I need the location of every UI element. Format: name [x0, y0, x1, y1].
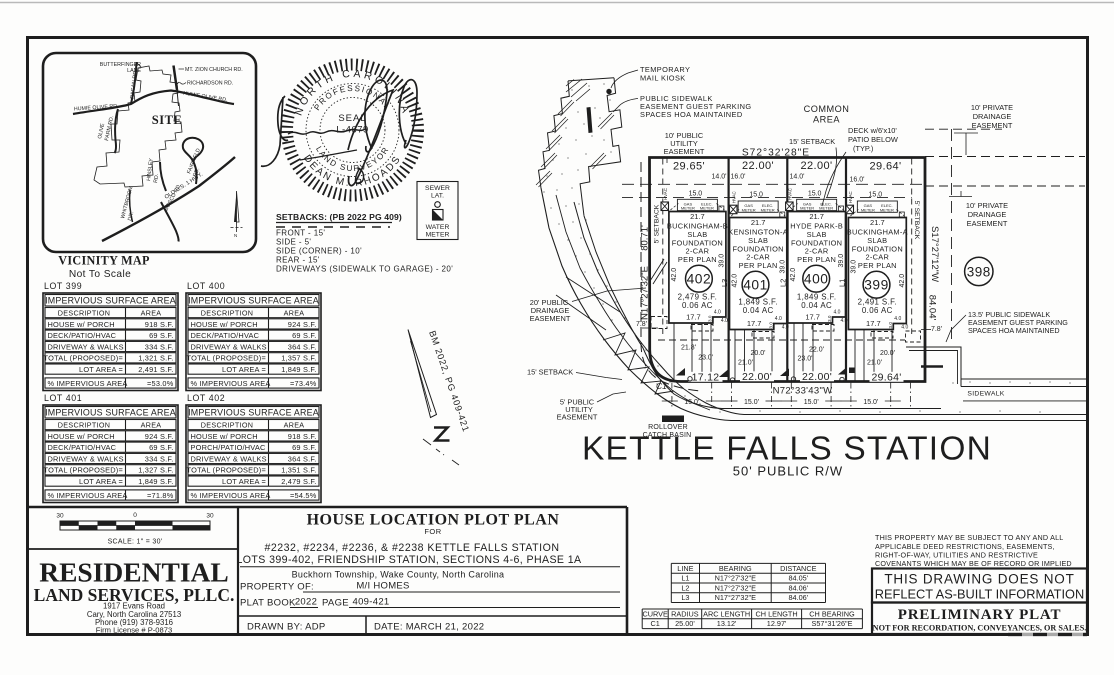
svg-text:THIS DRAWING DOES NOT: THIS DRAWING DOES NOT [884, 572, 1074, 587]
svg-text:16.0': 16.0' [731, 174, 746, 181]
svg-text:METER: METER [761, 207, 775, 212]
svg-text:DESCRIPTION: DESCRIPTION [201, 420, 253, 429]
svg-text:=73.4%: =73.4% [290, 379, 317, 388]
svg-text:L3: L3 [681, 593, 689, 602]
svg-text:N72°33'43"W: N72°33'43"W [773, 385, 833, 396]
svg-text:17.12: 17.12 [692, 371, 720, 383]
svg-text:924 S.F.: 924 S.F. [145, 432, 174, 441]
svg-text:4.0: 4.0 [834, 310, 841, 316]
svg-text:AREA: AREA [284, 308, 305, 317]
svg-text:METER: METER [700, 206, 714, 211]
svg-text:13.12': 13.12' [717, 619, 737, 628]
svg-text:3.0: 3.0 [827, 315, 832, 322]
svg-text:PER PLAN: PER PLAN [739, 261, 778, 270]
svg-text:0.06 AC: 0.06 AC [682, 301, 713, 310]
svg-text:4.0: 4.0 [714, 310, 721, 316]
svg-text:PAGE: PAGE [322, 598, 349, 609]
svg-text:22.0': 22.0' [809, 347, 824, 354]
svg-text:29.64': 29.64' [869, 161, 901, 173]
svg-text:REFLECT AS-BUILT INFORMATION: REFLECT AS-BUILT INFORMATION [875, 587, 1085, 602]
svg-text:4.0: 4.0 [841, 318, 848, 324]
svg-text:DRIVEWAY & WALKS: DRIVEWAY & WALKS [48, 342, 124, 351]
svg-text:C1: C1 [656, 381, 667, 391]
svg-text:DRIVEWAY & WALKS: DRIVEWAY & WALKS [48, 454, 124, 463]
svg-text:FRONT - 15': FRONT - 15' [276, 229, 325, 238]
svg-text:METER: METER [800, 206, 814, 211]
svg-text:HOUSE LOCATION PLOT PLAN: HOUSE LOCATION PLOT PLAN [307, 512, 560, 529]
svg-text:DRAINAGE: DRAINAGE [973, 112, 1012, 121]
svg-text:N17°27'32"E: N17°27'32"E [715, 574, 757, 583]
svg-text:DESCRIPTION: DESCRIPTION [58, 308, 110, 317]
svg-text:M/I HOMES: M/I HOMES [356, 581, 409, 592]
svg-text:DECK w/6'x10': DECK w/6'x10' [848, 126, 897, 135]
svg-text:924 S.F.: 924 S.F. [288, 320, 317, 329]
svg-text:TOTAL (PROPOSED)=: TOTAL (PROPOSED)= [187, 354, 266, 363]
svg-text:42.0: 42.0 [732, 274, 739, 288]
svg-text:REAR - 15': REAR - 15' [276, 256, 320, 265]
svg-text:0.06 AC: 0.06 AC [862, 306, 893, 315]
svg-text:MAIL KIOSK: MAIL KIOSK [640, 74, 686, 83]
svg-text:17.7: 17.7 [747, 319, 762, 328]
svg-text:4.0: 4.0 [782, 325, 789, 331]
svg-text:15.0: 15.0 [808, 191, 822, 198]
svg-text:39.0: 39.0 [850, 260, 857, 274]
svg-text:22.00': 22.00' [742, 160, 774, 172]
svg-text:COVENANTS WHICH MAY BE OF RECO: COVENANTS WHICH MAY BE OF RECORD OR IMPL… [875, 559, 1072, 568]
svg-text:PRELIMINARY PLAT: PRELIMINARY PLAT [898, 607, 1062, 623]
svg-text:918 S.F.: 918 S.F. [145, 320, 174, 329]
svg-text:918 S.F.: 918 S.F. [288, 432, 317, 441]
svg-text:1,849 S.F.: 1,849 S.F. [138, 477, 173, 486]
svg-text:RICHARDSON RD.: RICHARDSON RD. [187, 81, 233, 87]
svg-text:84.06': 84.06' [788, 593, 808, 602]
svg-text:EASEMENT: EASEMENT [972, 121, 1013, 130]
svg-text:COMMON: COMMON [804, 104, 850, 114]
svg-text:METER: METER [426, 232, 450, 239]
svg-text:% IMPERVIOUS AREA: % IMPERVIOUS AREA [191, 379, 271, 388]
svg-text:2022: 2022 [295, 597, 317, 608]
svg-text:1,321 S.F.: 1,321 S.F. [138, 354, 173, 363]
svg-text:10' PRIVATE: 10' PRIVATE [966, 201, 1008, 210]
svg-text:DISTANCE: DISTANCE [780, 564, 816, 573]
svg-text:LANE: LANE [127, 68, 141, 74]
svg-text:VICINITY MAP: VICINITY MAP [58, 254, 150, 268]
svg-text:DESCRIPTION: DESCRIPTION [58, 420, 110, 429]
svg-text:IMPERVIOUS SURFACE AREA: IMPERVIOUS SURFACE AREA [45, 296, 176, 306]
svg-text:SIDE (CORNER) - 10': SIDE (CORNER) - 10' [276, 247, 362, 256]
svg-text:SEWER: SEWER [425, 185, 450, 192]
svg-text:SCALE: 1" = 30': SCALE: 1" = 30' [108, 539, 163, 546]
svg-text:21.8': 21.8' [681, 345, 696, 352]
svg-text:PER PLAN: PER PLAN [858, 261, 897, 270]
svg-text:399: 399 [864, 278, 889, 293]
svg-text:DECK/PATIO/HVAC: DECK/PATIO/HVAC [48, 331, 117, 340]
svg-text:AREA: AREA [813, 115, 840, 125]
svg-text:DRAWN BY: ADP: DRAWN BY: ADP [247, 622, 326, 633]
svg-text:% IMPERVIOUS AREA: % IMPERVIOUS AREA [48, 379, 128, 388]
svg-text:(TYP.): (TYP.) [853, 144, 873, 153]
svg-text:DECK/PATIO/HVAC: DECK/PATIO/HVAC [48, 443, 117, 452]
svg-text:2,491 S.F.: 2,491 S.F. [138, 365, 173, 374]
svg-text:21.7: 21.7 [870, 218, 885, 227]
svg-text:LOT 399: LOT 399 [44, 281, 82, 291]
svg-text:LOT 400: LOT 400 [187, 281, 225, 291]
svg-text:#2232, #2234, #2236, & #2238 K: #2232, #2234, #2236, & #2238 KETTLE FALL… [264, 542, 559, 554]
svg-text:21.7: 21.7 [690, 212, 705, 221]
svg-text:23.0': 23.0' [698, 355, 713, 362]
svg-text:SETBACKS: (PB 2022 PG 409): SETBACKS: (PB 2022 PG 409) [276, 212, 402, 222]
svg-text:SIDEWALK: SIDEWALK [967, 391, 1004, 398]
svg-text:22.00': 22.00' [802, 371, 832, 383]
svg-text:HVAC: HVAC [788, 188, 793, 200]
svg-text:DRIVEWAY & WALKS: DRIVEWAY & WALKS [191, 454, 267, 463]
svg-text:15.0': 15.0' [804, 399, 819, 406]
svg-text:AREA: AREA [284, 420, 305, 429]
svg-text:L1: L1 [681, 574, 689, 583]
svg-text:17.7: 17.7 [686, 313, 701, 322]
svg-text:MT. ZION CHURCH RD.: MT. ZION CHURCH RD. [185, 67, 243, 73]
svg-text:21.0': 21.0' [738, 359, 753, 366]
svg-text:15.0': 15.0' [744, 399, 759, 406]
svg-text:METER: METER [861, 207, 875, 212]
svg-text:39.0: 39.0 [718, 254, 725, 268]
svg-text:PER PLAN: PER PLAN [678, 255, 717, 264]
svg-text:DRIVEWAY & WALKS: DRIVEWAY & WALKS [191, 342, 267, 351]
svg-text:50' PUBLIC R/W: 50' PUBLIC R/W [733, 464, 843, 479]
svg-text:14.0': 14.0' [790, 174, 805, 181]
svg-text:3.0: 3.0 [888, 322, 893, 329]
svg-text:PATIO BELOW: PATIO BELOW [848, 135, 898, 144]
svg-text:334 S.F.: 334 S.F. [145, 342, 174, 351]
svg-text:3.0: 3.0 [768, 322, 773, 329]
svg-text:15' SETBACK: 15' SETBACK [527, 368, 573, 377]
svg-text:1,327 S.F.: 1,327 S.F. [138, 466, 173, 475]
svg-text:HVAC: HVAC [848, 191, 853, 203]
svg-text:RESIDENTIAL: RESIDENTIAL [39, 557, 229, 588]
svg-text:402: 402 [687, 272, 712, 287]
svg-text:LOT AREA =: LOT AREA = [222, 365, 266, 374]
svg-text:15.0: 15.0 [869, 192, 883, 199]
svg-text:AREA: AREA [141, 420, 162, 429]
svg-text:Firm License # P-0873: Firm License # P-0873 [96, 626, 172, 635]
svg-text:30: 30 [56, 513, 64, 520]
svg-text:5' SETBACK: 5' SETBACK [654, 204, 661, 243]
svg-text:L3: L3 [720, 279, 729, 287]
svg-text:15.0: 15.0 [749, 192, 763, 199]
svg-text:EASEMENT: EASEMENT [664, 147, 705, 156]
svg-text:4.0: 4.0 [775, 316, 782, 322]
svg-text:334 S.F.: 334 S.F. [145, 454, 174, 463]
svg-text:IMPERVIOUS SURFACE AREA: IMPERVIOUS SURFACE AREA [45, 408, 176, 418]
svg-text:84.05': 84.05' [788, 574, 808, 583]
svg-text:4.0: 4.0 [721, 318, 728, 324]
svg-text:69 S.F.: 69 S.F. [292, 331, 316, 340]
svg-text:KETTLE FALLS STATION: KETTLE FALLS STATION [582, 431, 992, 468]
svg-text:42.0: 42.0 [899, 274, 906, 288]
svg-text:80.71': 80.71' [640, 225, 651, 251]
svg-text:HOUSE w/ PORCH: HOUSE w/ PORCH [48, 432, 115, 441]
svg-text:TOTAL (PROPOSED)=: TOTAL (PROPOSED)= [187, 466, 266, 475]
svg-text:LOTS 399-402, FRIENDSHIP STATI: LOTS 399-402, FRIENDSHIP STATION, SECTIO… [236, 554, 582, 566]
svg-text:22.00': 22.00' [800, 160, 832, 172]
svg-text:LAT.: LAT. [431, 193, 444, 200]
svg-text:401: 401 [743, 278, 768, 293]
svg-text:29.64': 29.64' [871, 371, 901, 383]
svg-text:4.0: 4.0 [894, 316, 901, 322]
svg-text:0.04 AC: 0.04 AC [743, 306, 774, 315]
svg-text:21.7: 21.7 [751, 218, 766, 227]
svg-text:20.0': 20.0' [880, 350, 895, 357]
svg-text:17.7: 17.7 [866, 319, 881, 328]
svg-text:0: 0 [133, 512, 137, 519]
svg-text:S72°32'28"E: S72°32'28"E [742, 148, 810, 159]
svg-text:FOR: FOR [424, 527, 441, 536]
svg-text:BEARING: BEARING [719, 564, 752, 573]
svg-text:=71.8%: =71.8% [147, 491, 174, 500]
svg-text:Buckhorn Township, Wake County: Buckhorn Township, Wake County, North Ca… [292, 570, 505, 580]
svg-text:69 S.F.: 69 S.F. [149, 331, 173, 340]
svg-text:IMPERVIOUS SURFACE AREA: IMPERVIOUS SURFACE AREA [188, 296, 319, 306]
svg-text:20.0': 20.0' [751, 350, 766, 357]
svg-text:LOT AREA =: LOT AREA = [79, 365, 123, 374]
svg-text:METER: METER [681, 206, 695, 211]
svg-text:HVAC: HVAC [663, 188, 668, 200]
svg-text:NOT FOR RECORDATION, CONVEYANC: NOT FOR RECORDATION, CONVEYANCES, OR SAL… [873, 624, 1087, 633]
svg-text:L2: L2 [681, 583, 689, 592]
svg-text:42.0: 42.0 [790, 268, 797, 282]
svg-text:EASEMENT: EASEMENT [557, 413, 598, 422]
svg-text:1,849 S.F.: 1,849 S.F. [281, 365, 316, 374]
svg-text:RADIUS: RADIUS [671, 609, 699, 618]
svg-text:15.0: 15.0 [689, 191, 703, 198]
svg-text:S17°27'12"W: S17°27'12"W [929, 226, 940, 282]
svg-text:HVAC: HVAC [732, 191, 737, 203]
svg-text:84.04': 84.04' [927, 295, 938, 321]
svg-text:42.0: 42.0 [671, 268, 678, 282]
svg-text:69 S.F.: 69 S.F. [292, 443, 316, 452]
svg-text:S57°31'26"E: S57°31'26"E [812, 619, 853, 628]
svg-text:1,357 S.F.: 1,357 S.F. [281, 354, 316, 363]
svg-text:AREA: AREA [141, 308, 162, 317]
svg-text:0.04 AC: 0.04 AC [801, 301, 832, 310]
svg-text:DRIVEWAYS (SIDEWALK TO GARAGE): DRIVEWAYS (SIDEWALK TO GARAGE) - 20' [276, 265, 453, 274]
svg-text:IMPERVIOUS SURFACE AREA: IMPERVIOUS SURFACE AREA [188, 408, 319, 418]
svg-text:16.0': 16.0' [850, 177, 865, 184]
svg-text:39.0: 39.0 [838, 254, 845, 268]
svg-text:400: 400 [804, 272, 829, 287]
svg-text:LOT AREA =: LOT AREA = [222, 477, 266, 486]
svg-text:7.8': 7.8' [931, 326, 942, 333]
svg-text:% IMPERVIOUS AREA: % IMPERVIOUS AREA [48, 491, 128, 500]
svg-text:12.97': 12.97' [767, 619, 787, 628]
svg-text:3.0: 3.0 [707, 315, 712, 322]
svg-text:EASEMENT: EASEMENT [530, 314, 571, 323]
svg-text:SITE: SITE [152, 113, 183, 127]
svg-text:PLAT BOOK: PLAT BOOK [240, 598, 296, 609]
svg-text:METER: METER [880, 207, 894, 212]
svg-text:METER: METER [819, 206, 833, 211]
svg-text:% IMPERVIOUS AREA: % IMPERVIOUS AREA [191, 491, 271, 500]
svg-text:22.00': 22.00' [742, 371, 772, 383]
svg-text:15.0': 15.0' [863, 399, 878, 406]
svg-text:PER PLAN: PER PLAN [797, 255, 836, 264]
svg-text:CH BEARING: CH BEARING [809, 609, 855, 618]
svg-text:SIDE - 5': SIDE - 5' [276, 238, 311, 247]
svg-text:ARC LENGTH: ARC LENGTH [703, 609, 750, 618]
svg-text:N17°27'32"E: N17°27'32"E [715, 583, 757, 592]
svg-text:RD.: RD. [153, 173, 160, 183]
svg-text:10' PRIVATE: 10' PRIVATE [971, 103, 1013, 112]
svg-text:EASEMENT: EASEMENT [967, 219, 1008, 228]
svg-text:15.0': 15.0' [684, 399, 699, 406]
svg-text:14.0': 14.0' [712, 174, 727, 181]
svg-text:SPACES HOA MAINTAINED: SPACES HOA MAINTAINED [968, 326, 1060, 335]
svg-text:30: 30 [206, 513, 214, 520]
svg-text:39.0: 39.0 [779, 260, 786, 274]
svg-text:HOUSE w/ PORCH: HOUSE w/ PORCH [48, 320, 115, 329]
svg-text:DRAINAGE: DRAINAGE [968, 210, 1007, 219]
svg-text:1,351 S.F.: 1,351 S.F. [281, 466, 316, 475]
svg-text:C1: C1 [651, 619, 660, 628]
svg-text:=54.5%: =54.5% [290, 491, 317, 500]
svg-text:69 S.F.: 69 S.F. [149, 443, 173, 452]
svg-text:5' SETBACK: 5' SETBACK [913, 201, 920, 240]
svg-text:N17°27'32"E: N17°27'32"E [640, 266, 651, 320]
svg-text:25.00': 25.00' [675, 619, 695, 628]
svg-text:364 S.F.: 364 S.F. [288, 342, 317, 351]
svg-text:CH LENGTH: CH LENGTH [756, 609, 798, 618]
svg-text:N17°27'32"E: N17°27'32"E [715, 593, 757, 602]
svg-text:23.0': 23.0' [798, 355, 813, 362]
svg-text:THIS PROPERTY MAY BE SUBJECT T: THIS PROPERTY MAY BE SUBJECT TO ANY AND … [875, 533, 1063, 542]
svg-text:LOT 401: LOT 401 [44, 393, 82, 403]
svg-text:PORCH/PATIO/HVAC: PORCH/PATIO/HVAC [191, 443, 267, 452]
svg-text:CURVE: CURVE [642, 609, 668, 618]
svg-text:TOTAL (PROPOSED)=: TOTAL (PROPOSED)= [44, 354, 123, 363]
svg-text:29.65': 29.65' [673, 161, 705, 173]
svg-text:PROPERTY OF:: PROPERTY OF: [240, 582, 314, 593]
svg-text:L1: L1 [837, 279, 846, 287]
svg-text:N: N [234, 233, 237, 238]
svg-text:SPACES HOA MAINTAINED: SPACES HOA MAINTAINED [640, 110, 743, 119]
svg-text:METER: METER [742, 207, 756, 212]
svg-text:84.06': 84.06' [788, 583, 808, 592]
svg-text:WATER: WATER [426, 224, 450, 231]
svg-text:LOT 402: LOT 402 [187, 393, 225, 403]
svg-text:409-421: 409-421 [353, 597, 390, 608]
svg-text:398: 398 [967, 264, 991, 279]
svg-text:DECK/PATIO/HVAC: DECK/PATIO/HVAC [191, 331, 260, 340]
svg-text:HOUSE w/ PORCH: HOUSE w/ PORCH [191, 320, 258, 329]
svg-text:364 S.F.: 364 S.F. [288, 454, 317, 463]
svg-text:DESCRIPTION: DESCRIPTION [201, 308, 253, 317]
svg-text:21.0': 21.0' [867, 359, 882, 366]
svg-text:7.8': 7.8' [636, 321, 647, 328]
svg-text:LINE: LINE [677, 564, 693, 573]
svg-text:LOT AREA =: LOT AREA = [79, 477, 123, 486]
svg-text:21.7: 21.7 [809, 212, 824, 221]
svg-text:HOUSE w/ PORCH: HOUSE w/ PORCH [191, 432, 258, 441]
svg-text:17.7: 17.7 [805, 313, 820, 322]
svg-text:L2: L2 [779, 279, 788, 287]
svg-text:Not To Scale: Not To Scale [69, 269, 131, 280]
svg-text:4.0: 4.0 [901, 325, 908, 331]
svg-text:2,479 S.F.: 2,479 S.F. [281, 477, 316, 486]
svg-text:15' SETBACK: 15' SETBACK [789, 137, 835, 146]
svg-text:DATE: MARCH 21, 2022: DATE: MARCH 21, 2022 [374, 622, 484, 633]
svg-text:TOTAL (PROPOSED)=: TOTAL (PROPOSED)= [44, 466, 123, 475]
svg-text:=53.0%: =53.0% [147, 379, 174, 388]
